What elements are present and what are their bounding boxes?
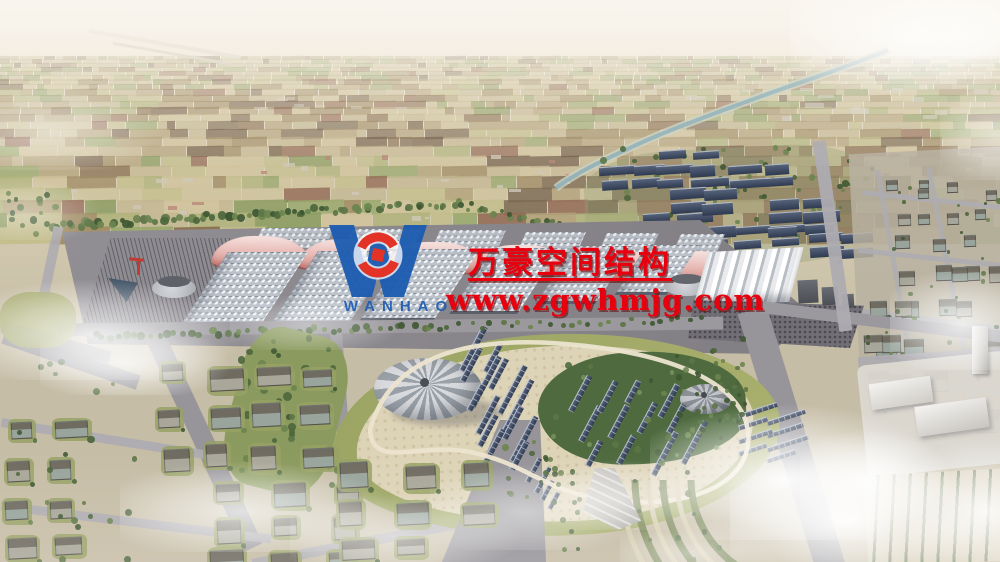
website-url-watermark: www.zgwhmjg.com: [446, 286, 765, 315]
watermark: WANHAO 万豪空间结构 www.zgwhmjg.com: [0, 0, 1000, 562]
aerial-rendering-expo-masterplan: WANHAO 万豪空间结构 www.zgwhmjg.com: [0, 0, 1000, 562]
wanhao-logo-icon: [326, 222, 430, 300]
company-name-watermark: 万豪空间结构: [468, 247, 672, 278]
